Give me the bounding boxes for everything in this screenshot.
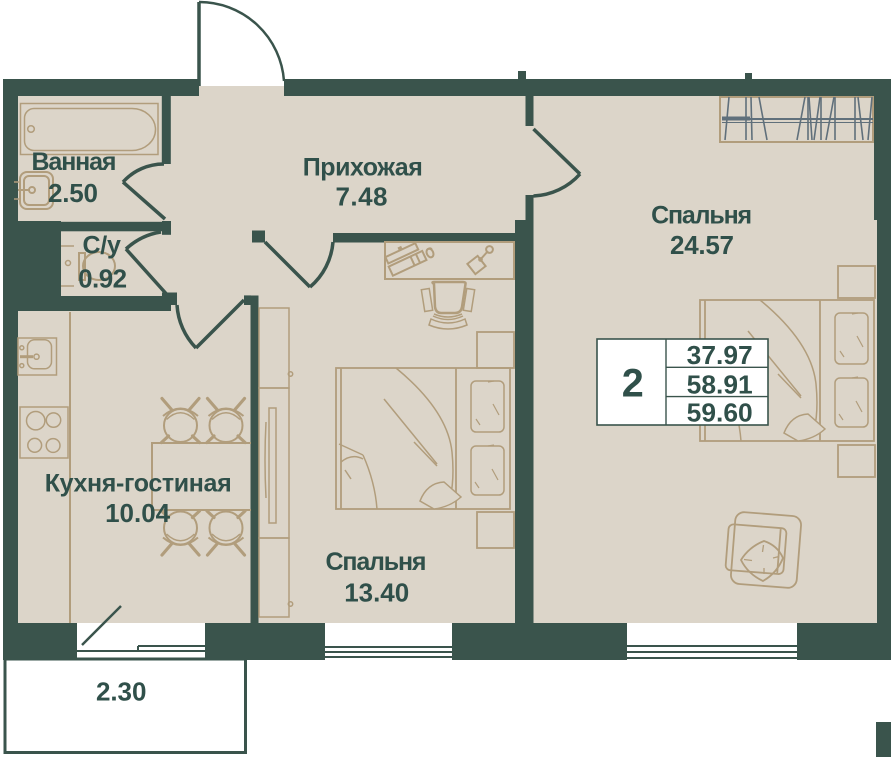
svg-text:24.57: 24.57 (670, 230, 734, 260)
svg-text:Спальня: Спальня (326, 548, 427, 576)
svg-text:0.92: 0.92 (78, 264, 127, 294)
svg-text:Ванная: Ванная (32, 148, 117, 176)
svg-text:С/у: С/у (82, 232, 121, 260)
svg-text:37.97: 37.97 (687, 340, 753, 370)
svg-text:2: 2 (622, 362, 644, 406)
svg-text:58.91: 58.91 (687, 369, 753, 399)
svg-text:10.04: 10.04 (105, 498, 171, 528)
svg-text:13.40: 13.40 (344, 577, 409, 607)
svg-text:Прихожая: Прихожая (303, 153, 423, 181)
svg-text:2.30: 2.30 (96, 676, 147, 706)
svg-text:Кухня-гостиная: Кухня-гостиная (45, 470, 232, 498)
svg-text:Спальня: Спальня (651, 201, 752, 229)
svg-text:7.48: 7.48 (336, 182, 388, 212)
svg-text:59.60: 59.60 (687, 398, 753, 428)
svg-text:2.50: 2.50 (48, 178, 98, 208)
